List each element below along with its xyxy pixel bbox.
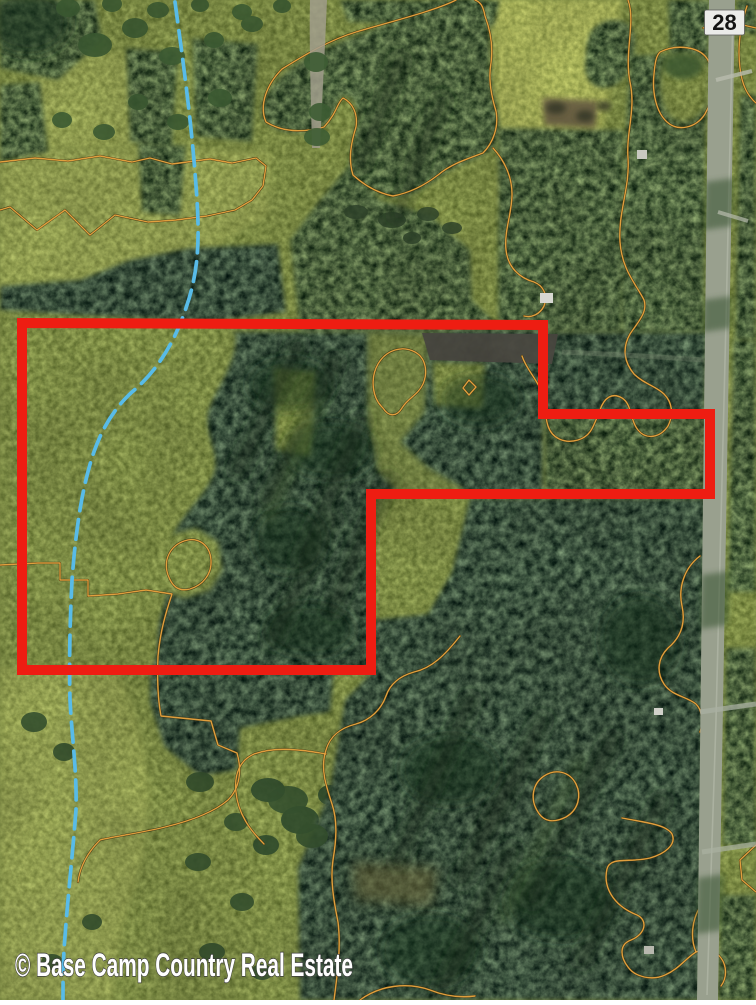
svg-text:28: 28 (712, 10, 736, 35)
svg-text:© Base Camp Country Real Estat: © Base Camp Country Real Estate (15, 947, 353, 983)
